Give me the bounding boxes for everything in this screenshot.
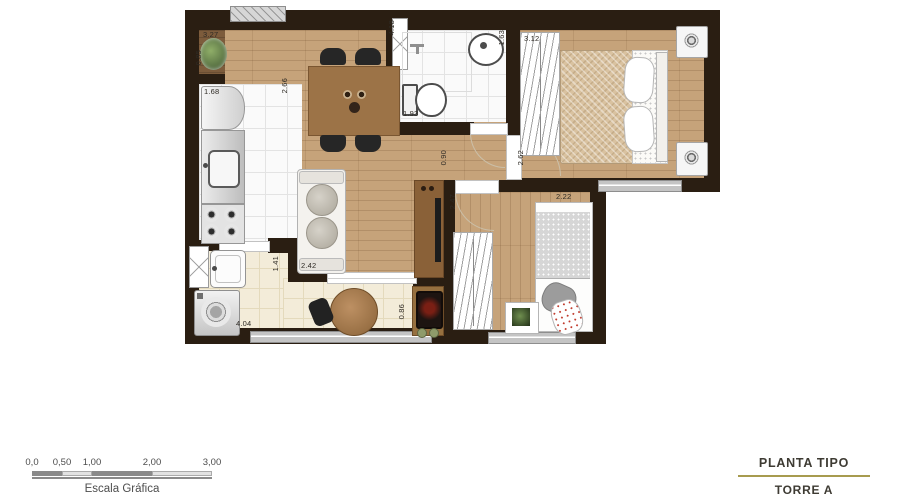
sofa-armrest [299,171,344,184]
dim-balcony-length: 4.04 [236,320,251,328]
scale-tick: 2,00 [143,458,162,468]
table-decor-icon [349,102,360,113]
wardrobe-bedroom2 [453,232,493,330]
dining-chair [355,48,381,65]
door-bedroom2 [455,180,499,194]
dim-grill-width: 0.86 [398,304,406,319]
burner-icon [204,224,219,239]
scale-segment [152,471,212,476]
burner-icon [204,207,219,222]
pillow [622,105,655,153]
scale-segment [32,471,62,476]
dim-kitchen-width: 1.68 [204,88,219,96]
dim-bathroom-length: 4.18 [388,20,396,35]
scale-caption: Escala Gráfica [32,483,212,497]
door-bathroom [470,123,508,135]
scale-tick: 0,0 [25,458,38,468]
wall-bedroom2-top-right [497,180,520,192]
washer-drum-icon [201,297,231,327]
master-bed-headboard [656,52,668,162]
burner-icon [224,207,239,222]
scale-tick: 0,50 [53,458,72,468]
rack-knob-icon [429,186,434,191]
pillow [622,56,655,104]
tv-screen [435,198,441,262]
table-decor-icon [343,90,352,99]
scale-tick: 3,00 [203,458,222,468]
dim-sofa-wall: 2.42 [301,262,316,270]
wall-entry-kitchen-stub [185,74,225,84]
title-divider [738,475,870,477]
dining-chair [320,135,346,152]
plan-title: PLANTA TIPO [738,456,870,471]
dim-master-depth: 2.62 [517,150,525,165]
dim-tv-wall: 0.90 [440,150,448,165]
kitchen-faucet-icon [203,163,208,168]
window-balcony-rail [250,331,432,343]
title-block: PLANTA TIPO TORRE A [738,456,870,497]
burner-icon [224,224,239,239]
sofa-cushion [306,217,338,249]
toilet-bowl [415,83,447,117]
scale-segment [62,471,92,476]
dim-wardrobe-length: 3.12 [524,35,539,43]
rack-knob-icon [421,186,426,191]
grill-knob-icon [417,328,427,338]
table-decor-icon [357,90,366,99]
washer-dial-icon [197,293,203,299]
window-master-bedroom [598,180,682,192]
dim-entry-depth: 0.85 [195,50,203,65]
bathroom-faucet-icon [480,42,487,49]
laundry-faucet-icon [212,266,217,271]
single-bed-blanket [536,212,590,279]
balcony-table [330,288,378,336]
scale-bar: 0,0 0,50 1,00 2,00 3,00 Escala Gráfica [32,458,222,498]
scale-tick: 1,00 [83,458,102,468]
scale-segment [92,471,152,476]
kitchen-sink [208,150,240,188]
wardrobe-master [520,32,560,156]
dim-laundry-width: 1.41 [272,256,280,271]
grill-knob-icon [429,328,439,338]
dim-kitchen-length: 2.66 [281,78,289,93]
dining-table [308,66,400,136]
entry-hatch-panel [230,6,286,22]
dining-chair [320,48,346,65]
dim-bedroom2-width: 2.22 [556,193,571,201]
tower-label: TORRE A [738,483,870,497]
shower-head-icon [416,44,419,54]
laundry-tub-basin [215,255,241,283]
plant-entry [200,38,227,70]
dim-toilet-wall: 1.93 [403,110,418,118]
wall-hall-master-stub [506,125,520,135]
wall-bathroom-right [506,12,520,125]
floorplan-image: 3.27 0.85 1.68 2.66 4.18 1.93 1.63 3.12 … [0,0,900,500]
master-bed-blanket [560,50,634,164]
bbq-grill [416,291,443,329]
dim-bedroom2-depth: 2.47 [449,194,457,209]
dining-chair [355,135,381,152]
plant-bedroom2 [512,308,530,326]
scale-ruler [32,471,212,479]
dim-entry-width: 3.27 [203,31,218,39]
water-heater [189,246,209,288]
lamp-icon [684,150,699,165]
dim-bath-width: 1.63 [498,30,506,45]
lamp-icon [684,33,699,48]
sofa-cushion [306,184,338,216]
